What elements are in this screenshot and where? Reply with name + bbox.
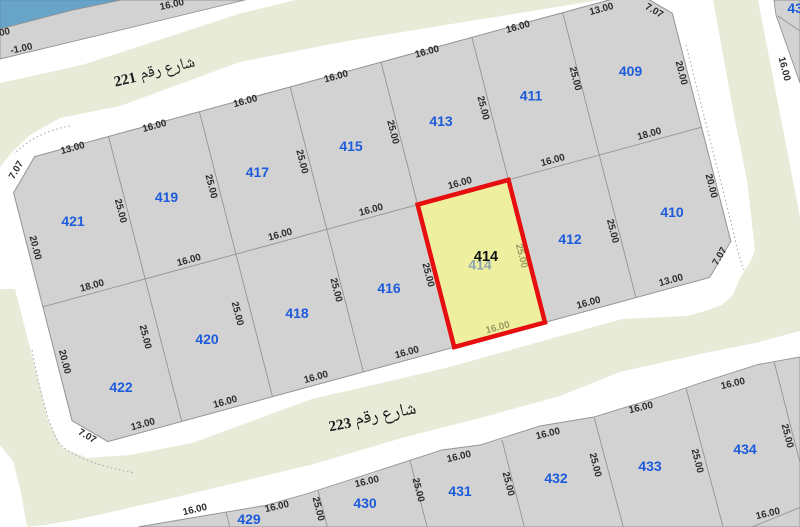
svg-text:410: 410: [660, 204, 684, 220]
svg-text:434: 434: [733, 441, 757, 457]
svg-text:431: 431: [448, 483, 472, 499]
svg-text:430: 430: [353, 495, 377, 511]
svg-text:419: 419: [155, 189, 179, 205]
svg-text:409: 409: [619, 63, 643, 79]
svg-text:429: 429: [237, 511, 261, 527]
svg-text:417: 417: [246, 164, 270, 180]
svg-text:412: 412: [558, 231, 582, 247]
svg-text:435: 435: [787, 0, 800, 16]
svg-text:418: 418: [285, 305, 309, 321]
svg-text:433: 433: [638, 458, 662, 474]
svg-text:413: 413: [429, 113, 453, 129]
svg-text:416: 416: [377, 280, 401, 296]
svg-text:422: 422: [109, 379, 133, 395]
svg-text:421: 421: [61, 213, 85, 229]
svg-text:411: 411: [520, 88, 543, 104]
svg-text:432: 432: [544, 470, 568, 486]
svg-text:420: 420: [195, 331, 219, 347]
svg-text:414: 414: [474, 249, 498, 265]
svg-text:415: 415: [339, 138, 363, 154]
